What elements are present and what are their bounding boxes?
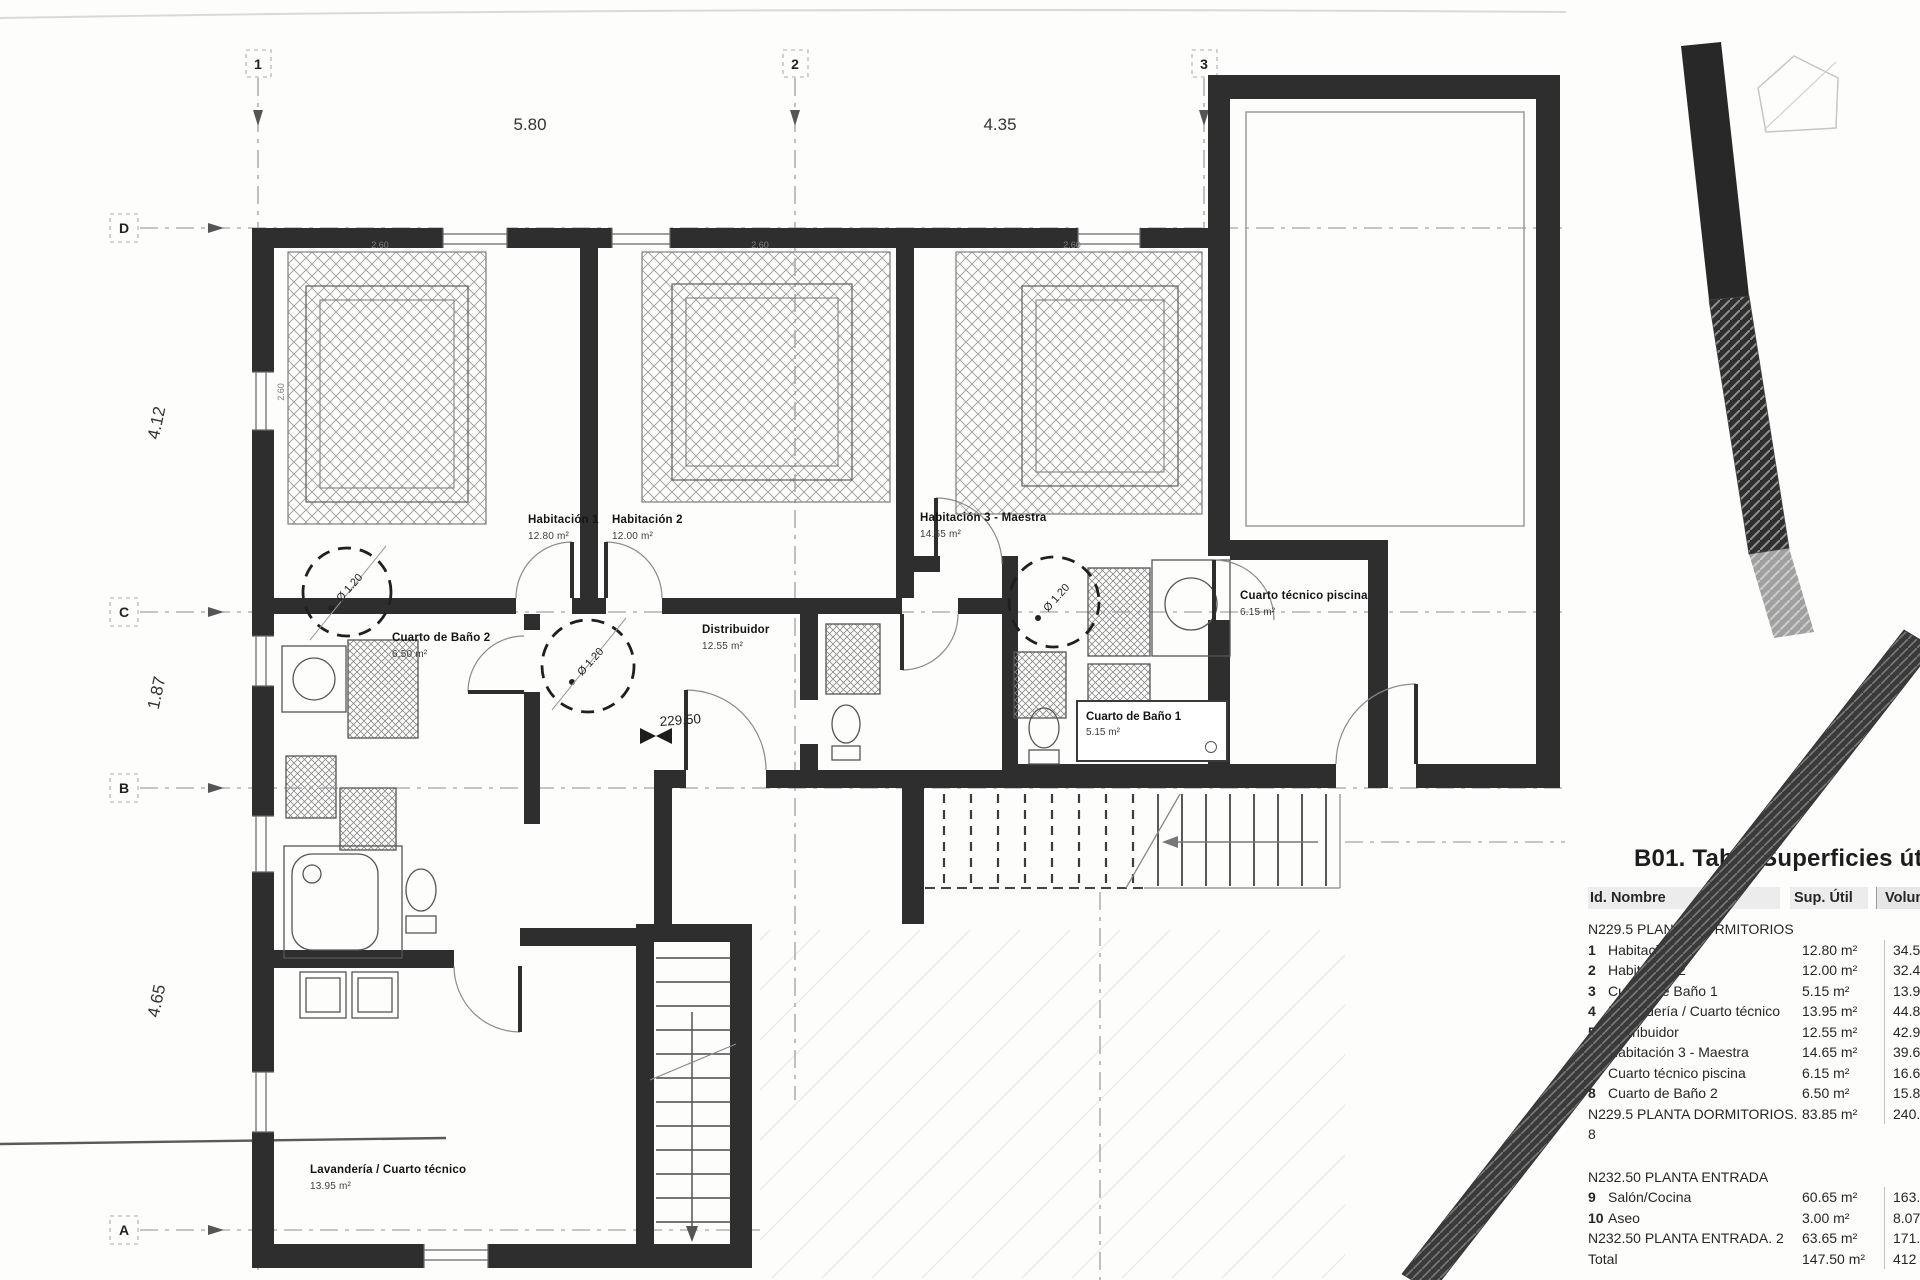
cell-id: 7: [1588, 1063, 1608, 1084]
cell-volumen: 39.60 m³: [1884, 1042, 1920, 1063]
table-row-9: 9Salón/Cocina60.65 m²163.7 m³: [1588, 1187, 1920, 1208]
table-row-5: 5Distribuidor12.55 m²42.92 m³: [1588, 1022, 1920, 1043]
cell-volumen: 44.81 m³: [1884, 1001, 1920, 1022]
table-row-4: 4Lavandería / Cuarto técnico13.95 m²44.8…: [1588, 1001, 1920, 1022]
room-label-bano-2: Cuarto de Baño 2 6.50 m²: [392, 632, 490, 661]
room-area: 5.15 m²: [1086, 727, 1218, 738]
room-name: Cuarto técnico piscina: [1240, 590, 1368, 604]
table-row-2: 2Habitación 212.00 m²32.47 m³: [1588, 960, 1920, 981]
cell-nombre: N229.5 PLANTA DORMITORIOS. 8: [1588, 1104, 1802, 1145]
table-row-10: 10Aseo3.00 m²8.07 m³: [1588, 1208, 1920, 1229]
room-label-habitacion-3: Habitación 3 - Maestra 14.65 m²: [920, 512, 1046, 541]
cell-id: 6: [1588, 1042, 1608, 1063]
header-sup-util: Sup. Útil: [1790, 887, 1868, 909]
room-label-habitacion-2: Habitación 2 12.00 m²: [612, 514, 683, 543]
cell-volumen: 171.7 m³: [1884, 1228, 1920, 1249]
cell-sup-util: 12.80 m²: [1802, 940, 1884, 961]
table-title: B01. Tabla Superficies útiles: [1634, 845, 1920, 873]
cell-nombre: Aseo: [1608, 1208, 1802, 1229]
table-row-subtotal: N229.5 PLANTA DORMITORIOS. 883.85 m²240.…: [1588, 1104, 1920, 1145]
cell-nombre: Habitación 3 - Maestra: [1608, 1042, 1802, 1063]
room-label-lavanderia: Lavandería / Cuarto técnico 13.95 m²: [310, 1164, 466, 1193]
cell-id: 9: [1588, 1187, 1608, 1208]
cell-sup-util: 147.50 m²: [1802, 1249, 1884, 1270]
drain-icon: [1205, 741, 1217, 753]
cell-sup-util: 63.65 m²: [1802, 1228, 1884, 1249]
room-area: 6.50 m²: [392, 649, 490, 661]
cell-nombre: Lavandería / Cuarto técnico: [1608, 1001, 1802, 1022]
cell-volumen: 412 m³: [1884, 1249, 1920, 1270]
surfaces-table: B01. Tabla Superficies útiles Id. Nombre…: [1588, 845, 1920, 1269]
cell-sup-util: 13.95 m²: [1802, 1001, 1884, 1022]
cell-nombre: N232.50 PLANTA ENTRADA. 2: [1588, 1228, 1802, 1249]
table-header: Id. Nombre Sup. Útil Volumen: [1588, 887, 1920, 909]
cell-id: 3: [1588, 981, 1608, 1002]
table-rows: N229.5 PLANTA DORMITORIOS1Habitación 112…: [1588, 919, 1920, 1269]
table-row-8: 8Cuarto de Baño 26.50 m²15.89 m³: [1588, 1083, 1920, 1104]
header-id: Id.: [1590, 890, 1607, 906]
room-label-bano-1: Cuarto de Baño 1 5.15 m²: [1076, 700, 1228, 762]
cell-id: 2: [1588, 960, 1608, 981]
cell-volumen: 163.7 m³: [1884, 1187, 1920, 1208]
room-label-piscina: Cuarto técnico piscina 6.15 m²: [1240, 590, 1368, 619]
cell-volumen: 240.82 m³: [1884, 1104, 1920, 1125]
cell-nombre: Total: [1588, 1249, 1802, 1270]
cell-volumen: 42.92 m³: [1884, 1022, 1920, 1043]
cell-nombre: Habitación 1: [1608, 940, 1802, 961]
cell-nombre: Cuarto de Baño 1: [1608, 981, 1802, 1002]
cell-volumen: 15.89 m³: [1884, 1083, 1920, 1104]
cell-sup-util: 12.55 m²: [1802, 1022, 1884, 1043]
table-row-6: 6Habitación 3 - Maestra14.65 m²39.60 m³: [1588, 1042, 1920, 1063]
cell-sup-util: 6.15 m²: [1802, 1063, 1884, 1084]
table-row-section: N229.5 PLANTA DORMITORIOS: [1588, 919, 1920, 940]
cell-nombre: Salón/Cocina: [1608, 1187, 1802, 1208]
cell-id: 10: [1588, 1208, 1608, 1229]
cell-id: 8: [1588, 1083, 1608, 1104]
cell-nombre: Habitación 2: [1608, 960, 1802, 981]
cell-volumen: 8.07 m³: [1884, 1208, 1920, 1229]
cell-nombre: N229.5 PLANTA DORMITORIOS: [1588, 919, 1802, 940]
room-name: Habitación 2: [612, 514, 683, 528]
table-row-total: Total147.50 m²412 m³: [1588, 1249, 1920, 1270]
room-area: 12.00 m²: [612, 531, 683, 543]
room-name: Distribuidor: [702, 624, 770, 638]
table-row-section: N232.50 PLANTA ENTRADA: [1588, 1167, 1920, 1188]
cell-volumen: 16.60 m³: [1884, 1063, 1920, 1084]
cell-sup-util: 12.00 m²: [1802, 960, 1884, 981]
cell-sup-util: 60.65 m²: [1802, 1187, 1884, 1208]
room-label-distribuidor: Distribuidor 12.55 m²: [702, 624, 770, 653]
cell-nombre: N232.50 PLANTA ENTRADA: [1588, 1167, 1802, 1188]
header-volumen: Volumen: [1876, 887, 1920, 909]
room-area: 12.80 m²: [528, 531, 599, 543]
cell-nombre: Distribuidor: [1608, 1022, 1802, 1043]
table-row-7: 7Cuarto técnico piscina6.15 m²16.60 m³: [1588, 1063, 1920, 1084]
cell-id: 5: [1588, 1022, 1608, 1043]
room-name: Habitación 1: [528, 514, 599, 528]
header-nombre: Nombre: [1611, 890, 1666, 906]
cell-sup-util: 3.00 m²: [1802, 1208, 1884, 1229]
room-name: Cuarto de Baño 2: [392, 632, 490, 646]
floor-plan-page: 1 2 3 D C B A 5.80 4.35 4.12 1.87 4.65: [0, 0, 1920, 1280]
cell-id: 4: [1588, 1001, 1608, 1022]
cell-volumen: 34.57 m³: [1884, 940, 1920, 961]
cell-volumen: 32.47 m³: [1884, 960, 1920, 981]
cell-sup-util: 6.50 m²: [1802, 1083, 1884, 1104]
room-area: 14.65 m²: [920, 529, 1046, 541]
room-area: 13.95 m²: [310, 1181, 466, 1193]
room-area: 6.15 m²: [1240, 607, 1368, 619]
cell-id: 1: [1588, 940, 1608, 961]
table-row-3: 3Cuarto de Baño 15.15 m²13.96 m³: [1588, 981, 1920, 1002]
table-row-1: 1Habitación 112.80 m²34.57 m³: [1588, 940, 1920, 961]
cell-sup-util: 14.65 m²: [1802, 1042, 1884, 1063]
cell-nombre: Cuarto técnico piscina: [1608, 1063, 1802, 1084]
cell-sup-util: 83.85 m²: [1802, 1104, 1884, 1125]
cell-volumen: 13.96 m³: [1884, 981, 1920, 1002]
table-row-subtotal: N232.50 PLANTA ENTRADA. 263.65 m²171.7 m…: [1588, 1228, 1920, 1249]
cell-sup-util: 5.15 m²: [1802, 981, 1884, 1002]
cell-nombre: Cuarto de Baño 2: [1608, 1083, 1802, 1104]
header-id-nombre: Id. Nombre: [1588, 887, 1780, 909]
room-label-habitacion-1: Habitación 1 12.80 m²: [528, 514, 599, 543]
room-area: 12.55 m²: [702, 641, 770, 653]
room-name: Habitación 3 - Maestra: [920, 512, 1046, 526]
room-name: Cuarto de Baño 1: [1086, 711, 1218, 723]
room-name: Lavandería / Cuarto técnico: [310, 1164, 466, 1178]
